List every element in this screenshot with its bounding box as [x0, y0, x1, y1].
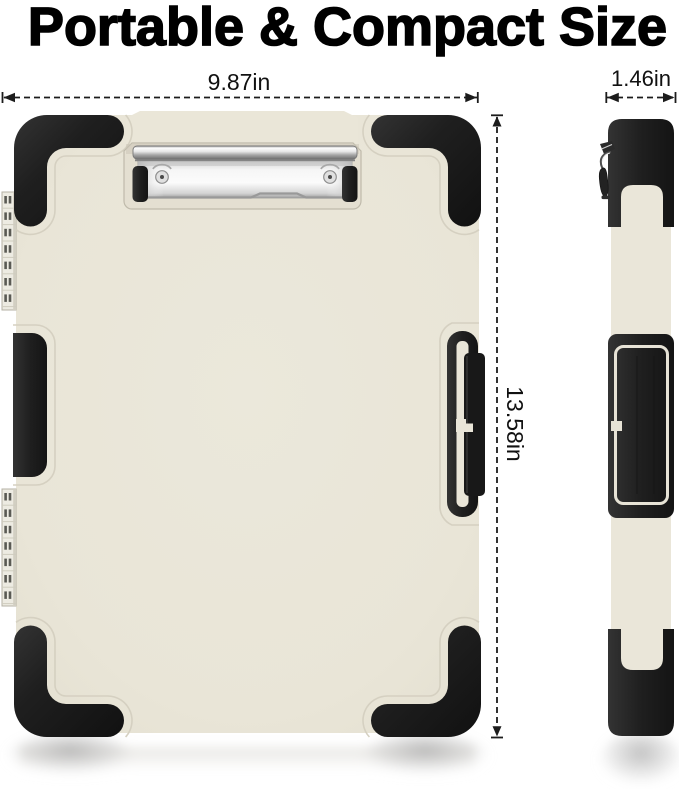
- svg-text:9.87in: 9.87in: [208, 69, 271, 95]
- svg-text:1.46in: 1.46in: [611, 66, 671, 91]
- svg-text:13.58in: 13.58in: [502, 386, 528, 461]
